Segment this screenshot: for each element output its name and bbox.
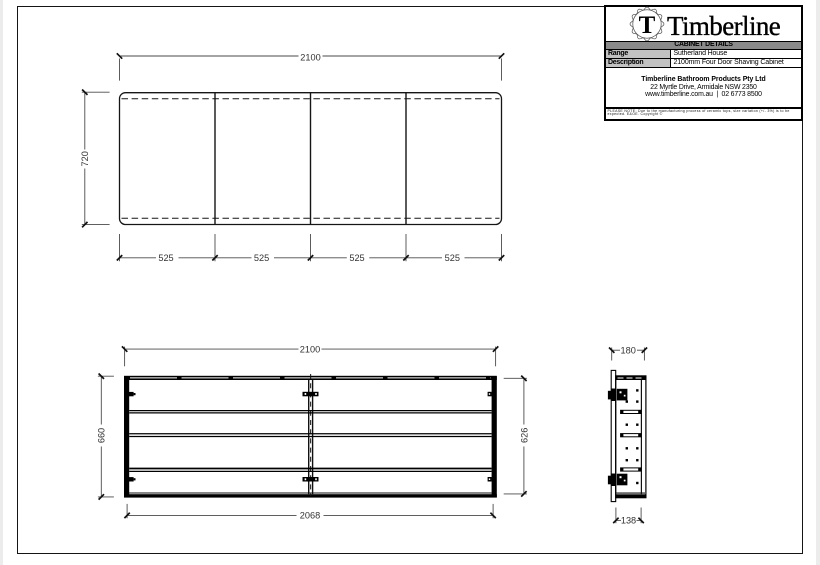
svg-text:2068: 2068: [300, 511, 320, 521]
svg-text:720: 720: [80, 151, 90, 166]
svg-text:180: 180: [621, 345, 636, 355]
svg-text:525: 525: [158, 253, 173, 263]
svg-text:626: 626: [519, 428, 529, 443]
svg-text:2100: 2100: [300, 53, 320, 63]
svg-text:138: 138: [621, 516, 636, 526]
svg-text:525: 525: [349, 253, 364, 263]
svg-text:525: 525: [445, 253, 460, 263]
svg-text:660: 660: [97, 428, 107, 443]
svg-text:525: 525: [254, 253, 269, 263]
svg-text:2100: 2100: [300, 344, 320, 354]
